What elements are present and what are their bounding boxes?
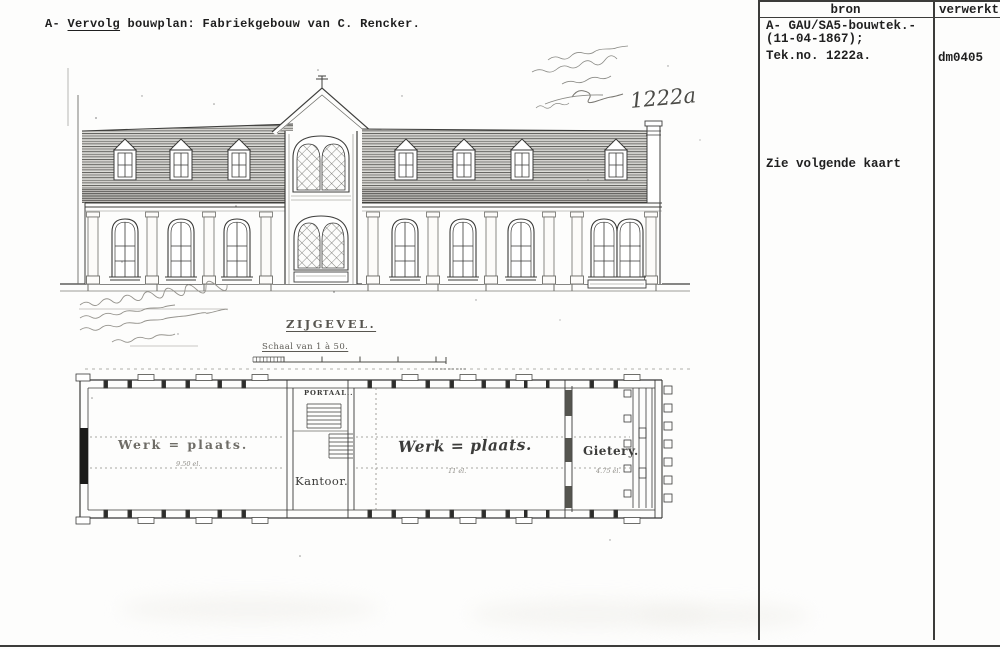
- plan-portal-block: [287, 380, 354, 518]
- verwerkt-entry: dm0405: [938, 51, 983, 65]
- bron-entry-line-3: Tek.no. 1222a.: [766, 49, 871, 63]
- scale-bar: [253, 357, 446, 365]
- plan-divider-wall: [565, 380, 572, 518]
- plan-label-portaal: PORTAAL..: [304, 389, 353, 397]
- column-header-verwerkt: verwerkt: [939, 3, 999, 17]
- panel-rule-left-vertical: [758, 0, 760, 640]
- elevation-caption: ZIJGEVEL.: [286, 317, 376, 331]
- plan-dim-workshop-left: 9.50 el.: [176, 460, 201, 468]
- plan-dim-foundry: 4.75 el.: [596, 467, 621, 475]
- plan-label-foundry: Gietery.: [583, 444, 639, 458]
- panel-rule-top-horizontal: [758, 0, 1000, 2]
- bron-entry-line-2: (11-04-1867);: [766, 32, 864, 46]
- column-header-bron: bron: [758, 3, 933, 17]
- page-bottom-rule: [0, 645, 1000, 647]
- plan-dim-workshop-center: 11 el.: [448, 467, 466, 475]
- bron-entry-line-1: A- GAU/SA5-bouwtek.-: [766, 19, 916, 33]
- page-title-prefix: A-: [45, 17, 68, 31]
- archive-card-page: { "header": { "prefix": "A- ", "underlin…: [0, 0, 1000, 649]
- panel-rule-header-underline: [758, 17, 1000, 18]
- page-title: A- Vervolg bouwplan: Fabriekgebouw van C…: [30, 3, 420, 31]
- panel-rule-middle-vertical: [933, 0, 935, 640]
- plan-label-workshop-center: Werk = plaats.: [398, 435, 532, 456]
- plan-label-workshop-left: Werk = plaats.: [118, 437, 248, 452]
- panel-note: Zie volgende kaart: [766, 157, 901, 171]
- plan-label-kantoor: Kantoor.: [295, 474, 348, 488]
- page-title-underlined: Vervolg: [68, 17, 121, 31]
- handwritten-note-top: [532, 46, 628, 108]
- scanned-drawing: [0, 0, 1000, 649]
- tower-gable: [272, 76, 372, 284]
- page-title-rest: bouwplan: Fabriekgebouw van C. Rencker.: [120, 17, 420, 31]
- scale-caption: Schaal van 1 à 50.: [262, 342, 348, 352]
